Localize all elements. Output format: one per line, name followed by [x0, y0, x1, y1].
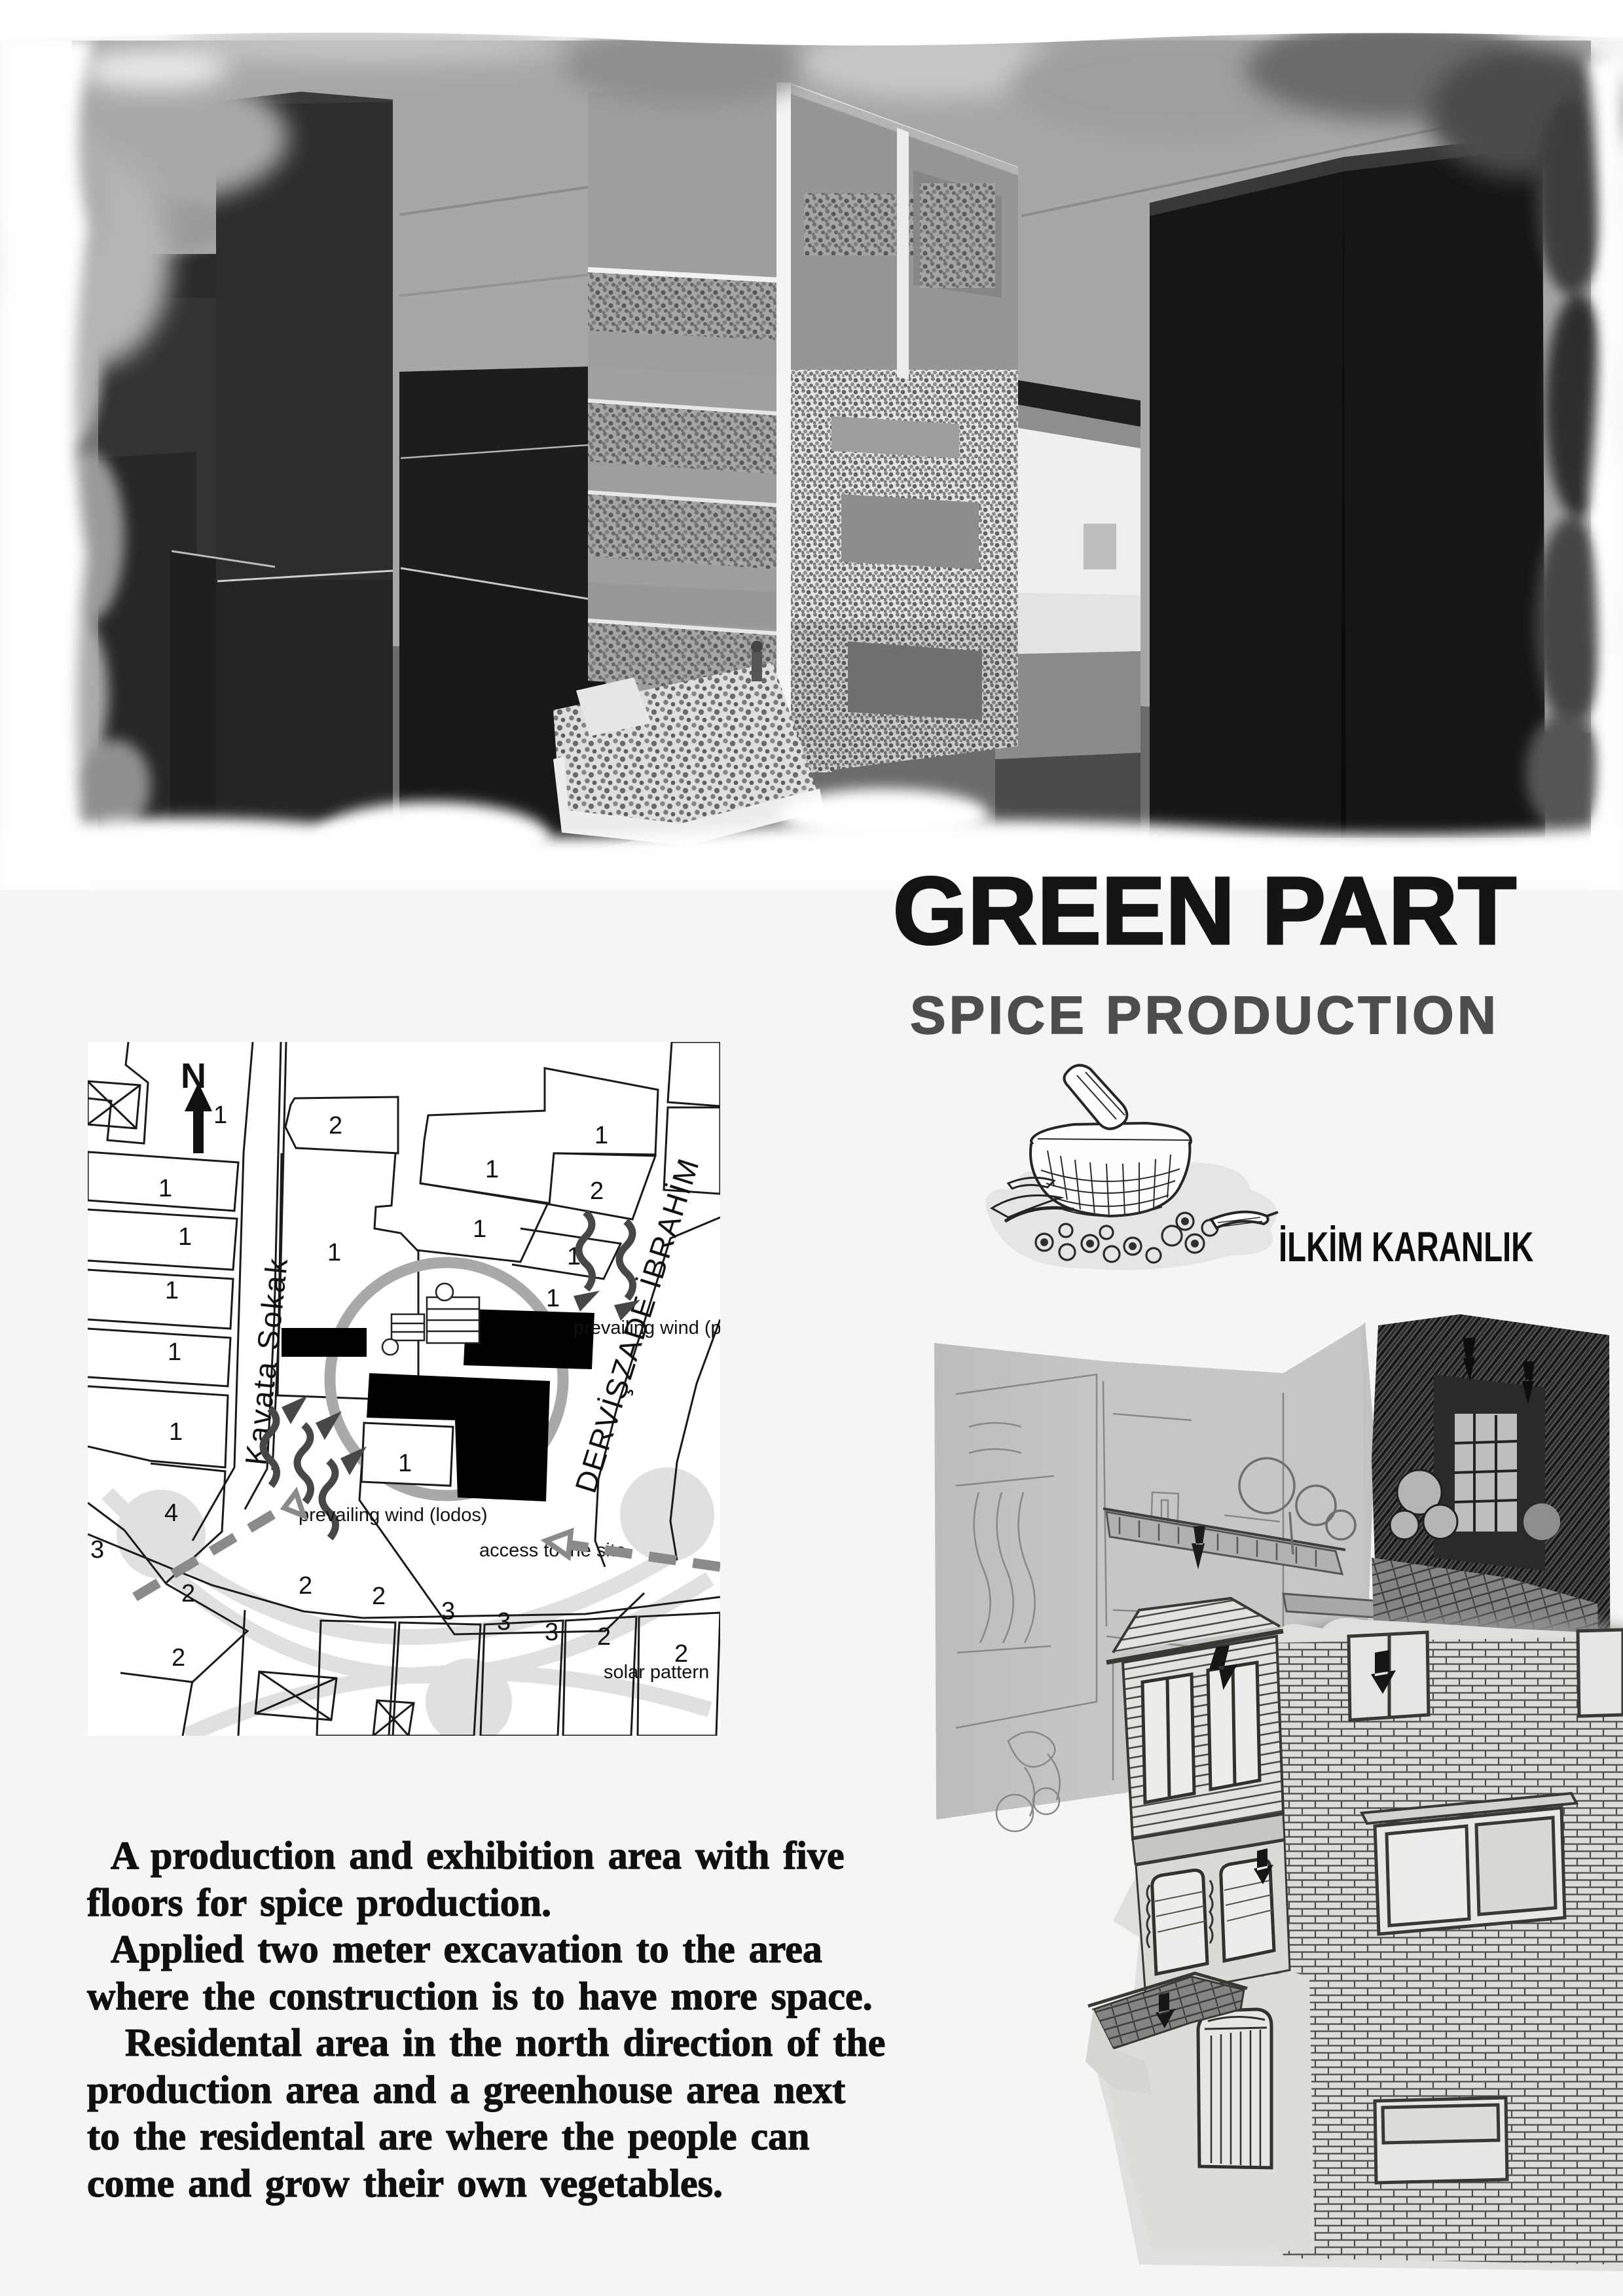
svg-text:1: 1: [327, 1239, 341, 1266]
svg-text:1: 1: [178, 1223, 192, 1251]
svg-text:3: 3: [441, 1598, 455, 1625]
svg-text:4: 4: [164, 1499, 178, 1527]
svg-text:solar pattern: solar pattern: [604, 1662, 709, 1683]
svg-text:1: 1: [398, 1450, 412, 1477]
svg-text:1: 1: [546, 1285, 560, 1312]
svg-text:2: 2: [172, 1644, 185, 1672]
svg-text:1: 1: [168, 1338, 181, 1366]
svg-text:1: 1: [594, 1122, 608, 1149]
svg-text:2: 2: [590, 1177, 604, 1205]
svg-text:1: 1: [485, 1156, 499, 1183]
svg-text:2: 2: [372, 1583, 386, 1610]
svg-text:3: 3: [497, 1608, 511, 1636]
svg-text:prevailing wind (lodos): prevailing wind (lodos): [299, 1505, 488, 1526]
svg-text:1: 1: [165, 1277, 179, 1304]
svg-text:2: 2: [597, 1623, 611, 1651]
svg-text:1: 1: [473, 1215, 486, 1243]
svg-text:2: 2: [299, 1572, 312, 1600]
svg-text:prevailing wind (poyraz): prevailing wind (poyraz): [574, 1318, 720, 1338]
svg-text:2: 2: [329, 1112, 342, 1139]
svg-text:3: 3: [545, 1619, 558, 1646]
svg-text:N: N: [181, 1056, 206, 1096]
svg-text:3: 3: [90, 1536, 104, 1564]
svg-text:1: 1: [213, 1102, 227, 1129]
svg-text:1: 1: [169, 1418, 183, 1446]
svg-text:2: 2: [181, 1580, 195, 1607]
svg-text:1: 1: [158, 1175, 172, 1202]
